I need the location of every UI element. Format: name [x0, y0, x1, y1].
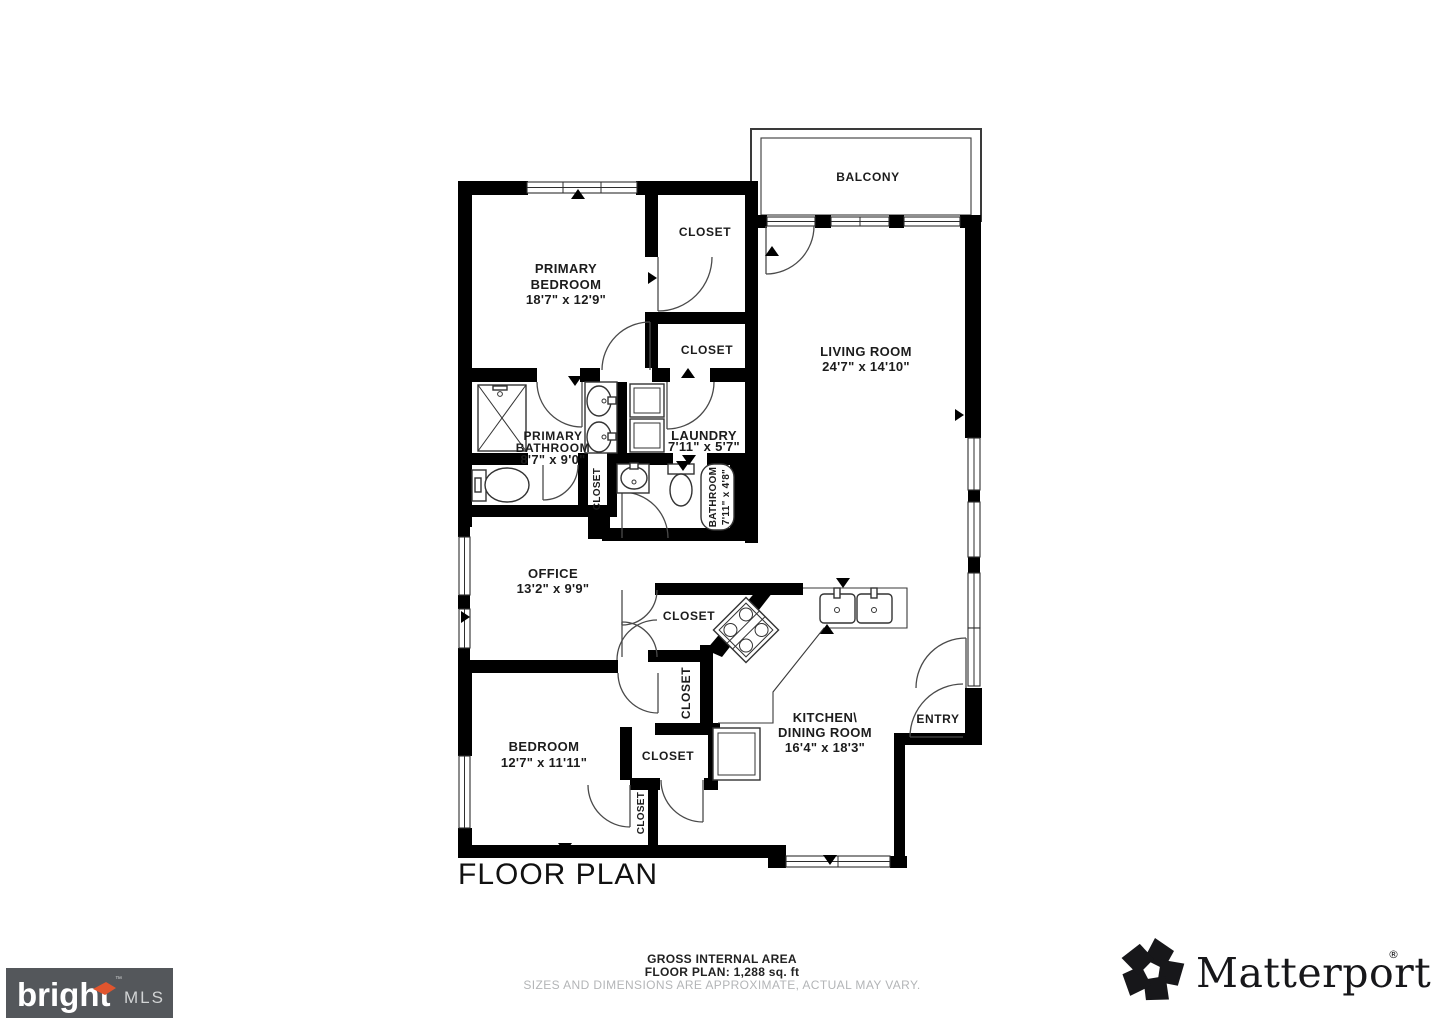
washer-dryer: [630, 384, 664, 452]
toilet: [472, 468, 529, 502]
bright-mls-suffix: MLS: [124, 988, 165, 1007]
bright-tm-mark: ™: [115, 976, 122, 983]
room-label-kitchen-1: KITCHEN\: [793, 710, 858, 725]
bright-mls-logo: bright ™ MLS: [6, 968, 173, 1018]
room-label-office: OFFICE: [528, 566, 578, 581]
floor-plan-page: BALCONY PRIMARY BEDROOM 18'7" x 12'9" CL…: [0, 0, 1440, 1018]
floor-plan-canvas: BALCONY PRIMARY BEDROOM 18'7" x 12'9" CL…: [0, 0, 1440, 1018]
room-label-closet-hall: CLOSET: [592, 468, 603, 510]
room-label-closet-office: CLOSET: [663, 609, 715, 623]
room-label-closet-bedroom: CLOSET: [642, 749, 694, 763]
room-label-kitchen-2: DINING ROOM: [778, 725, 872, 740]
page-title: FLOOR PLAN: [458, 858, 658, 891]
room-label-primary-bedroom-2: BEDROOM: [531, 277, 602, 292]
matterport-logo: Matterport ®: [1115, 938, 1431, 1011]
room-label-closet-top: CLOSET: [679, 225, 731, 239]
room-dims-bedroom: 12'7" x 11'11": [501, 755, 587, 770]
room-label-closet-hall2: CLOSET: [679, 667, 693, 719]
refrigerator: [713, 728, 760, 780]
matterport-registered-mark: ®: [1388, 948, 1399, 961]
room-dims-office: 13'2" x 9'9": [517, 581, 590, 596]
room-label-primary-bedroom-1: PRIMARY: [535, 261, 597, 276]
room-label-entry: ENTRY: [916, 712, 959, 726]
room-dims-primary-bathroom: 8'7" x 9'0": [520, 452, 585, 467]
room-label-balcony: BALCONY: [836, 170, 900, 184]
room-label-closet-mid: CLOSET: [681, 343, 733, 357]
gross-internal-area-label: GROSS INTERNAL AREA: [647, 952, 797, 966]
room-label-bathroom: BATHROOM: [708, 467, 719, 528]
room-dims-living-room: 24'7" x 14'10": [822, 359, 910, 374]
bright-wordmark: bright: [17, 976, 110, 1013]
room-dims-bathroom: 7'11" x 4'8": [721, 469, 732, 525]
room-label-living-room: LIVING ROOM: [820, 344, 912, 359]
room-dims-laundry: 7'11" x 5'7": [668, 439, 740, 454]
room-dims-primary-bedroom: 18'7" x 12'9": [526, 292, 606, 307]
floor-plan-area-value: FLOOR PLAN: 1,288 sq. ft: [645, 965, 800, 979]
room-label-closet-bedroom2: CLOSET: [636, 792, 647, 834]
matterport-pinwheel-icon: [1115, 938, 1190, 1011]
footer: GROSS INTERNAL AREA FLOOR PLAN: 1,288 sq…: [523, 952, 920, 992]
room-label-bedroom: BEDROOM: [509, 739, 580, 754]
disclaimer-text: SIZES AND DIMENSIONS ARE APPROXIMATE, AC…: [523, 978, 920, 992]
room-dims-kitchen: 16'4" x 18'3": [785, 740, 865, 755]
